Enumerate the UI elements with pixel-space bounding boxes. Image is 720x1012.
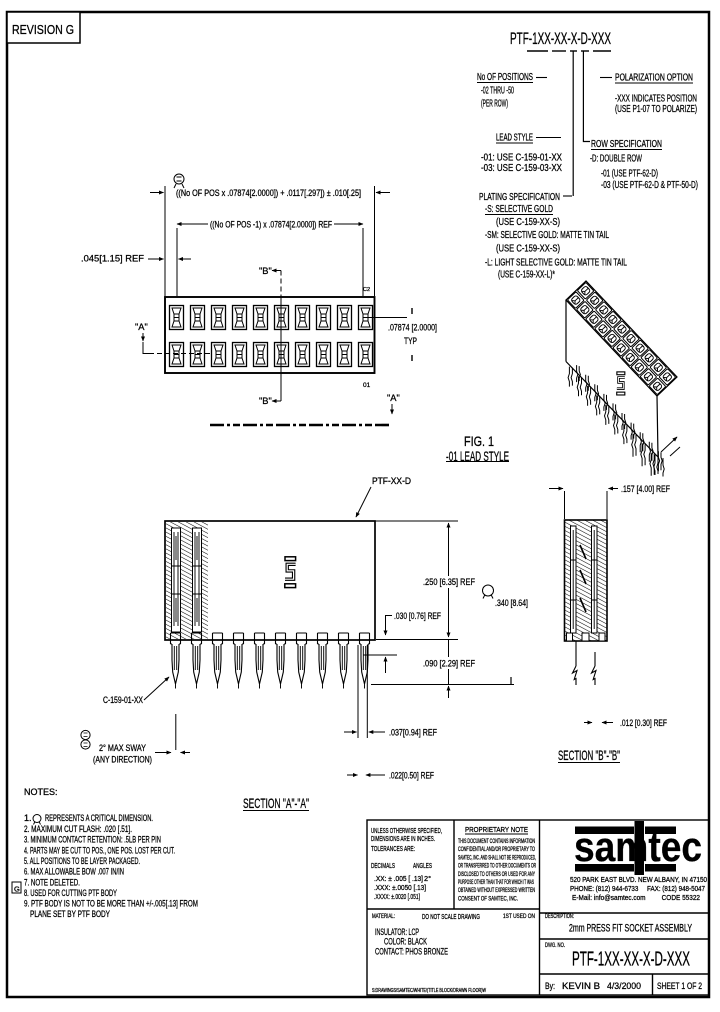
svg-text:.022[0.50] REF: .022[0.50] REF [389, 771, 434, 781]
svg-text:2mm PRESS FIT SOCKET ASSEMBLY: 2mm PRESS FIT SOCKET ASSEMBLY [569, 923, 692, 935]
svg-text:2°: 2° [424, 874, 431, 883]
svg-text:"B": "B" [259, 266, 272, 276]
svg-text:SHEET 1 OF 2: SHEET 1 OF 2 [657, 981, 702, 992]
svg-text:.012 [0.30] REF: .012 [0.30] REF [620, 718, 667, 728]
svg-text:KEVIN B: KEVIN B [562, 981, 600, 992]
svg-text:OBTAINED WITHOUT EXPRESSED WRI: OBTAINED WITHOUT EXPRESSED WRITTEN [458, 887, 535, 894]
svg-text:.157 [4.00] REF: .157 [4.00] REF [621, 484, 670, 494]
svg-text:DWG. NO.: DWG. NO. [545, 942, 565, 949]
svg-text:DESCRIPTION:: DESCRIPTION: [545, 913, 574, 920]
svg-text:PTF-1XX-XX-X-D-XXX: PTF-1XX-XX-X-D-XXX [510, 29, 611, 48]
svg-text:1ST USED ON: 1ST USED ON [503, 913, 535, 920]
svg-text:"B": "B" [259, 396, 272, 406]
svg-text:.340 [8.64]: .340 [8.64] [495, 598, 528, 608]
svg-text:C-159-01-XX: C-159-01-XX [103, 695, 143, 705]
svg-text:No OF POSITIONS: No OF POSITIONS [477, 72, 533, 83]
svg-text:DECIMALS: DECIMALS [371, 861, 395, 870]
svg-text:NOTES:: NOTES: [24, 787, 58, 797]
svg-text:.07874 [2.0000]: .07874 [2.0000] [388, 323, 437, 333]
svg-text:S:DRAWINGS/SAMTEC/WHITE/(TITLE: S:DRAWINGS/SAMTEC/WHITE/(TITLE BLOCK/DRA… [372, 988, 486, 994]
svg-text:-XXX INDICATES POSITION: -XXX INDICATES POSITION [615, 94, 697, 105]
svg-text:E-Mail: info@samtec.com: E-Mail: info@samtec.com CODE 55322 [572, 893, 700, 902]
svg-text:(USE C-159-XX-S): (USE C-159-XX-S) [496, 244, 560, 255]
svg-text:G: G [14, 885, 20, 894]
svg-text:SAMTEC, INC. AND SHALL NOT BE: SAMTEC, INC. AND SHALL NOT BE REPRODUCED… [458, 854, 536, 861]
svg-text:SECTION "B"-"B": SECTION "B"-"B" [558, 747, 620, 763]
svg-text:OR TRANSFERRED TO OTHER DOCUME: OR TRANSFERRED TO OTHER DOCUMENTS OR [458, 863, 536, 870]
svg-text:-SM: SELECTIVE GOLD: MATTE TIN: -SM: SELECTIVE GOLD: MATTE TIN TAIL [485, 230, 609, 241]
svg-text:THIS DOCUMENT CONTAINS INFORMA: THIS DOCUMENT CONTAINS INFORMATION [458, 838, 535, 845]
svg-text:((No OF POS x .07874[2.0000]): ((No OF POS x .07874[2.0000]) + .0117[.2… [176, 188, 361, 198]
svg-text:COLOR: BLACK: COLOR: BLACK [384, 937, 427, 947]
svg-text:5. ALL POSITIONS TO BE LAYER P: 5. ALL POSITIONS TO BE LAYER PACKAGED. [24, 856, 140, 866]
svg-text:.090 [2.29] REF: .090 [2.29] REF [423, 659, 475, 669]
svg-text:-02 THRU -50: -02 THRU -50 [481, 86, 514, 97]
svg-text:REVISION G: REVISION G [12, 22, 74, 37]
svg-text:INSULATOR: LCP: INSULATOR: LCP [375, 927, 419, 937]
svg-text:FIG. 1: FIG. 1 [464, 434, 494, 449]
svg-text:4/3/2000: 4/3/2000 [607, 981, 641, 992]
svg-text:.XXX: ±.0050 [.13]: .XXX: ±.0050 [.13] [374, 883, 426, 892]
svg-text:7. NOTE DELETED.: 7. NOTE DELETED. [24, 878, 80, 888]
svg-text:PLATING SPECIFICATION: PLATING SPECIFICATION [479, 192, 560, 203]
svg-text:"A": "A" [387, 393, 400, 403]
svg-text:520 PARK EAST BLVD. NEW ALBANY: 520 PARK EAST BLVD. NEW ALBANY, IN 47150 [570, 875, 707, 884]
svg-text:2. MAXIMUM CUT FLASH: .020 [.5: 2. MAXIMUM CUT FLASH: .020 [.51]. [24, 824, 132, 834]
svg-text:(USE C-159-XX-L)*: (USE C-159-XX-L)* [498, 270, 555, 281]
svg-text:((No OF POS -1) x .07874[2.000: ((No OF POS -1) x .07874[2.0000]) REF [210, 220, 332, 230]
svg-text:-01: USE C-159-01-XX: -01: USE C-159-01-XX [481, 153, 562, 164]
svg-text:TOLERANCES ARE:: TOLERANCES ARE: [371, 844, 415, 853]
svg-text:REPRESENTS A CRITICAL DIMENSIO: REPRESENTS A CRITICAL DIMENSION. [45, 813, 153, 823]
svg-text:01: 01 [363, 382, 371, 389]
svg-text:POLARIZATION OPTION: POLARIZATION OPTION [615, 73, 693, 84]
svg-text:(ANY DIRECTION): (ANY DIRECTION) [93, 755, 152, 765]
svg-text:PTF-1XX-XX-X-D-XXX: PTF-1XX-XX-X-D-XXX [572, 949, 690, 971]
svg-text:(USE P1-07 TO POLARIZE): (USE P1-07 TO POLARIZE) [615, 104, 697, 115]
svg-text:-03 (USE PTF-62-D & PTF-50-D): -03 (USE PTF-62-D & PTF-50-D) [601, 180, 698, 191]
svg-text:1.: 1. [24, 813, 32, 823]
svg-text:.030 [0.76] REF: .030 [0.76] REF [394, 611, 441, 621]
svg-text:(USE C-159-XX-S): (USE C-159-XX-S) [496, 217, 560, 228]
svg-text:C2: C2 [363, 287, 370, 293]
svg-text:.037[0.94] REF: .037[0.94] REF [389, 728, 437, 738]
svg-text:-S: SELECTIVE GOLD: -S: SELECTIVE GOLD [485, 204, 553, 215]
svg-text:-D: DOUBLE ROW: -D: DOUBLE ROW [590, 154, 642, 165]
svg-text:.045[1.15] REF: .045[1.15] REF [81, 254, 144, 264]
svg-text:CONSENT OF SAMTEC, INC.: CONSENT OF SAMTEC, INC. [458, 895, 518, 902]
svg-text:3. MINIMUM CONTACT RETENTION:: 3. MINIMUM CONTACT RETENTION: .5LB PER P… [24, 835, 161, 845]
svg-text:CONTACT: PHOS BRONZE: CONTACT: PHOS BRONZE [375, 947, 448, 957]
svg-text:MATERIAL:: MATERIAL: [372, 913, 395, 920]
svg-text:SECTION "A"-"A": SECTION "A"-"A" [243, 795, 309, 811]
svg-text:DIMENSIONS ARE IN INCHES.: DIMENSIONS ARE IN INCHES. [371, 834, 435, 843]
svg-text:PURPOSE OTHER THAN THAT FOR WH: PURPOSE OTHER THAN THAT FOR WHICH IT WAS [458, 879, 534, 886]
svg-text:DO NOT SCALE DRAWING: DO NOT SCALE DRAWING [422, 914, 480, 921]
svg-text:6. MAX ALLOWABLE BOW .007 IN/I: 6. MAX ALLOWABLE BOW .007 IN/IN [24, 867, 124, 877]
svg-text:-03: USE C-159-03-XX: -03: USE C-159-03-XX [481, 163, 562, 174]
svg-text:CONFIDENTIAL AND/OR PROPRIETAR: CONFIDENTIAL AND/OR PROPRIETARY TO [458, 846, 535, 853]
svg-text:"A": "A" [135, 322, 148, 332]
svg-text:TYP: TYP [404, 336, 417, 346]
svg-text:2° MAX SWAY: 2° MAX SWAY [99, 743, 146, 753]
svg-text:.250 [6.35] REF: .250 [6.35] REF [423, 577, 475, 587]
svg-text:9. PTF BODY IS NOT TO BE MORE: 9. PTF BODY IS NOT TO BE MORE THAN +/-.0… [24, 899, 198, 909]
svg-text:PLANE SET BY PTF BODY: PLANE SET BY PTF BODY [30, 909, 110, 919]
svg-text:-01 (USE PTF-62-D): -01 (USE PTF-62-D) [601, 169, 658, 180]
svg-text:.XXXX: ±.0020 [.051]: .XXXX: ±.0020 [.051] [374, 892, 420, 901]
svg-text:4. PARTS MAY BE CUT TO POS., O: 4. PARTS MAY BE CUT TO POS., ONE POS. LO… [24, 846, 175, 856]
svg-text:ANGLES: ANGLES [413, 861, 432, 870]
svg-text:PROPRIETARY NOTE: PROPRIETARY NOTE [465, 825, 528, 834]
svg-text:LEAD STYLE: LEAD STYLE [496, 133, 533, 144]
svg-text:ROW SPECIFICATION: ROW SPECIFICATION [591, 139, 662, 150]
svg-text:.XX: ± .005 [ .13]: .XX: ± .005 [ .13] [374, 874, 423, 883]
svg-text:PHONE: (812) 944-6733 FAX:: PHONE: (812) 944-6733 FAX: (812) 948-504… [570, 884, 705, 893]
svg-text:8. USED FOR CUTTING PTF BODY: 8. USED FOR CUTTING PTF BODY [24, 888, 117, 898]
svg-text:(PER ROW): (PER ROW) [481, 99, 508, 110]
svg-text:By:: By: [545, 981, 555, 992]
svg-text:DISCLOSED TO OTHERS OR USED FO: DISCLOSED TO OTHERS OR USED FOR ANY [458, 871, 535, 878]
svg-text:-L: LIGHT SELECTIVE GOLD: MATT: -L: LIGHT SELECTIVE GOLD: MATTE TIN TAIL [485, 258, 627, 269]
svg-text:PTF-XX-D: PTF-XX-D [372, 476, 411, 486]
